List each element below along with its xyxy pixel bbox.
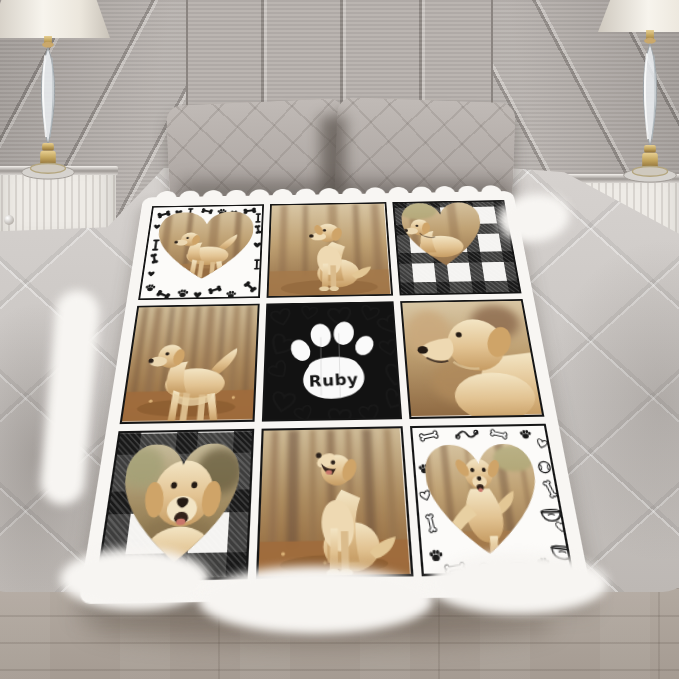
lampshade-icon <box>598 0 679 32</box>
product-photo: Ruby <box>0 0 679 679</box>
paw-icon <box>225 289 237 299</box>
heart-outline-icon <box>326 407 353 421</box>
blanket-cell-bottom-center <box>256 426 413 579</box>
pet-name-label: Ruby <box>308 369 358 389</box>
photo-blanket: Ruby <box>78 191 591 604</box>
crystal-lamp-right <box>592 0 679 200</box>
photo-dog-standing-pines <box>122 306 258 422</box>
heart-outline-icon <box>554 521 567 532</box>
lampshade-icon <box>0 0 110 38</box>
paw-icon <box>176 288 189 299</box>
bone-icon <box>154 288 173 301</box>
crystal-lamp-column <box>618 30 679 186</box>
blanket-cell-middle-left <box>120 304 260 424</box>
crystal-lamp-column <box>16 36 80 182</box>
blanket-fleece-edge-bottom <box>428 552 608 614</box>
blanket-cell-center: Ruby <box>262 302 401 422</box>
blanket-cell-top-left <box>138 204 264 300</box>
heart-outline-icon <box>536 437 548 449</box>
heart-icon <box>193 292 202 299</box>
photo-dog-sitting-forest <box>269 204 391 297</box>
blanket-cell-top-center <box>267 202 393 298</box>
blanket-cell-middle-right <box>400 299 545 418</box>
photo-dog-looking-up <box>259 428 411 577</box>
blanket-fleece-edge-bottom <box>198 566 433 634</box>
paw-print-icon: Ruby <box>276 313 388 408</box>
photo-dog-head-profile <box>402 301 542 417</box>
crystal-lamp-left <box>0 0 120 190</box>
drawer-knob <box>4 215 14 225</box>
heart-photo-dog-running <box>415 438 557 564</box>
blanket-fleece-edge-bottom <box>60 548 210 610</box>
heart-photo-dog-standing <box>145 207 261 285</box>
blanket-grid: Ruby <box>96 200 574 582</box>
bone-icon <box>206 284 224 296</box>
heart-photo-dog-portrait <box>395 200 493 271</box>
